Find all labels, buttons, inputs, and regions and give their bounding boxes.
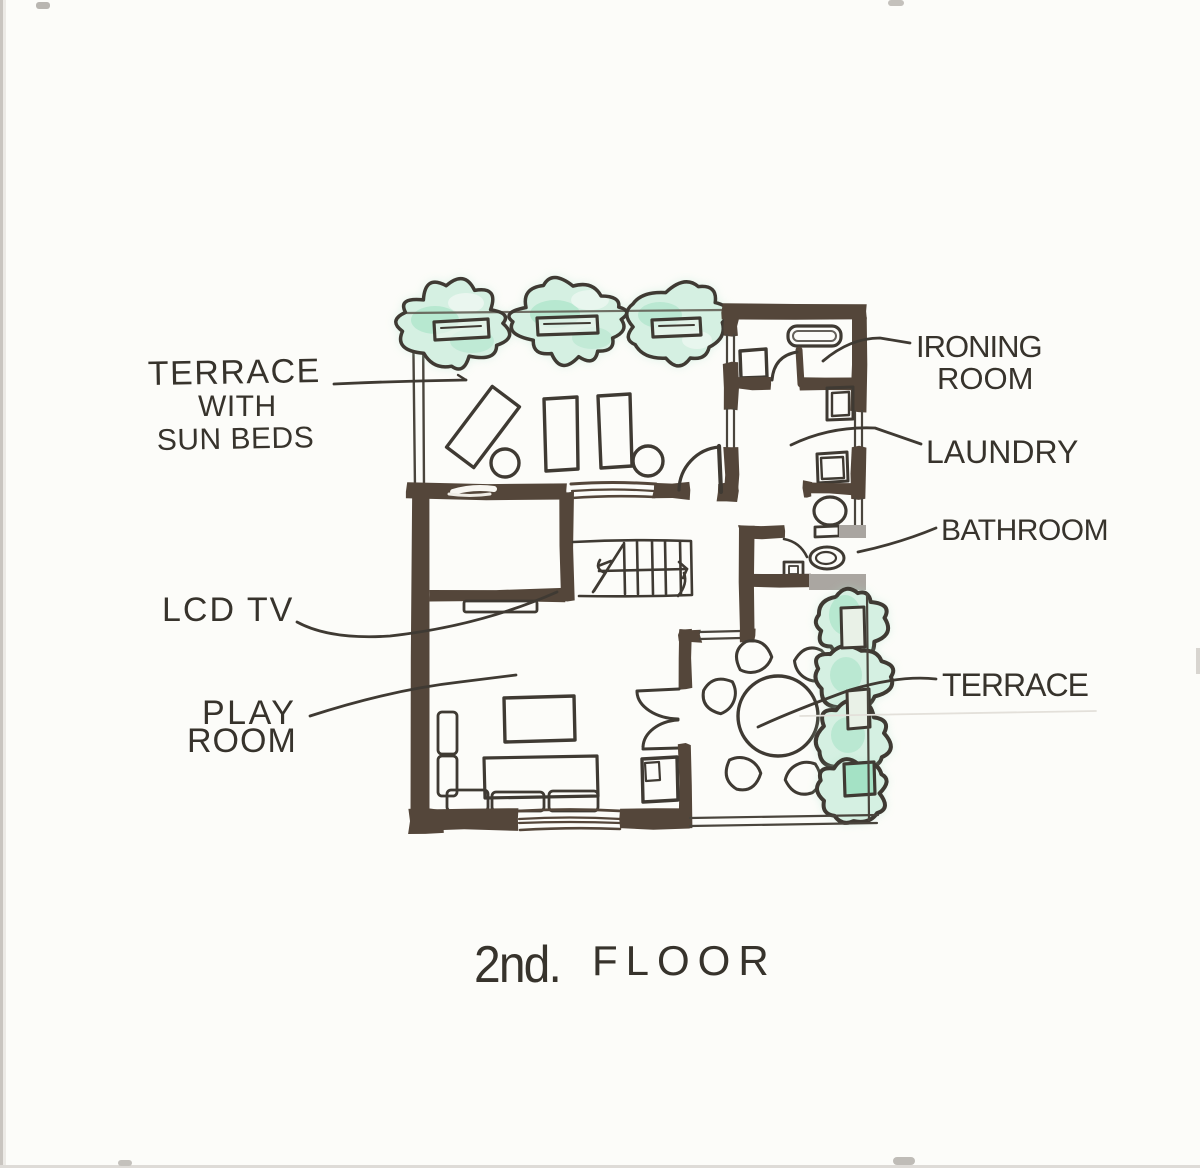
svg-text:2nd.: 2nd. [474,936,560,994]
svg-text:LCD TV: LCD TV [162,591,294,629]
svg-text:FLOOR: FLOOR [592,937,777,984]
svg-text:TERRACE: TERRACE [942,667,1088,703]
svg-text:WITH: WITH [198,390,277,423]
svg-text:TERRACE: TERRACE [147,352,321,393]
svg-text:BATHROOM: BATHROOM [941,514,1108,547]
svg-text:LAUNDRY: LAUNDRY [926,434,1078,470]
svg-text:ROOM: ROOM [937,361,1033,396]
svg-text:ROOM: ROOM [187,722,297,760]
svg-text:IRONING: IRONING [916,329,1042,364]
svg-text:SUN BEDS: SUN BEDS [157,421,315,457]
